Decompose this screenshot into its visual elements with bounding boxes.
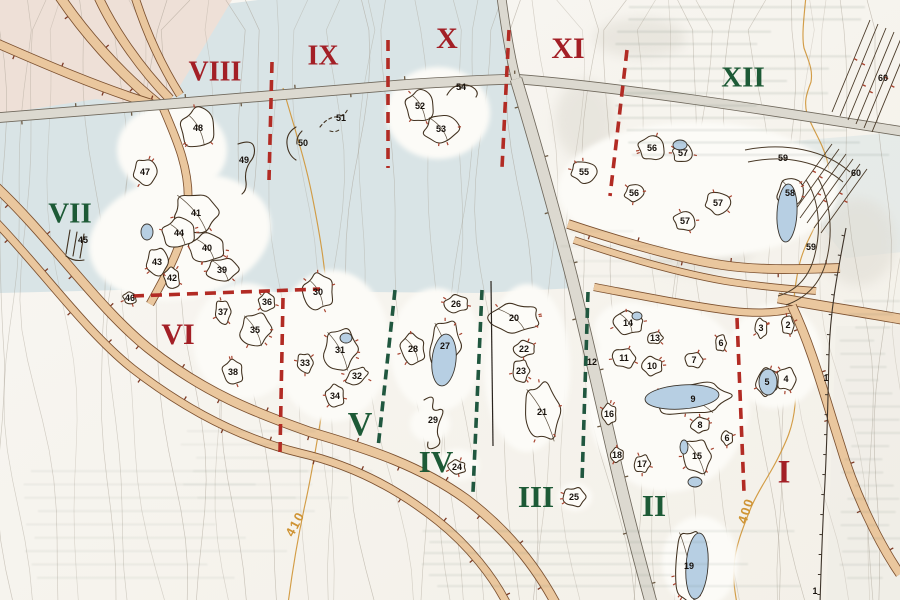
map-canvas: 1123456678910111213141516171819202122232… (0, 0, 900, 600)
print-bleed-line (840, 340, 875, 342)
feature-number-label: 32 (352, 371, 362, 381)
scarp-tick (170, 217, 173, 218)
print-bleed-line (632, 154, 889, 156)
bank-tick (842, 235, 845, 236)
zone-numeral-label: IV (419, 444, 454, 479)
feature-number-label: 49 (239, 155, 249, 165)
feature-number-label: 26 (451, 299, 461, 309)
scarp-tick (468, 306, 471, 307)
road-tick (623, 533, 626, 534)
scarp-tick (194, 104, 195, 107)
scarp-tick (538, 314, 541, 315)
print-bleed-line (855, 326, 890, 328)
scarp-tick (220, 297, 221, 300)
road-tick (681, 262, 682, 266)
print-bleed-line (422, 530, 794, 532)
feature-number-label: 2 (785, 320, 790, 330)
feature-number-label: 33 (300, 358, 310, 368)
feature-number-label: 43 (152, 257, 162, 267)
print-bleed-line (843, 300, 900, 302)
feature-number-label: 14 (623, 318, 633, 328)
zone-numeral-label: VI (161, 318, 194, 351)
feature-number-label: 45 (78, 235, 88, 245)
zone-numeral-label: I (778, 455, 791, 491)
road-tick (597, 426, 600, 427)
feature-number-label: 37 (218, 307, 228, 317)
feature-number-label: 58 (785, 188, 795, 198)
scarp-tick (539, 379, 540, 382)
scarp-tick (685, 414, 686, 417)
feature-number-label: 3 (758, 323, 763, 333)
feature-number-label: 20 (509, 313, 519, 323)
zone-numeral-label: VII (48, 198, 92, 230)
feature-number-label: 16 (604, 409, 614, 419)
scarp-tick (786, 313, 787, 316)
scarp-tick (441, 302, 444, 303)
feature-number-label: 24 (452, 462, 462, 472)
scarp-tick (790, 334, 791, 337)
print-bleed-line (850, 366, 887, 368)
print-bleed-line (847, 577, 883, 579)
feature-number-label: 56 (647, 143, 657, 153)
feature-number-label: 46 (125, 293, 135, 303)
feature-number-label: 54 (456, 82, 466, 92)
feature-number-label: 8 (697, 420, 702, 430)
feature-number-label: 22 (519, 344, 529, 354)
feature-number-label: 23 (516, 366, 526, 376)
print-bleed-line (422, 563, 749, 565)
pond (340, 333, 352, 343)
feature-number-label: 21 (537, 407, 547, 417)
print-bleed-line (578, 275, 679, 277)
print-bleed-line (193, 470, 373, 472)
print-bleed-line (840, 524, 889, 526)
print-bleed-line (197, 497, 348, 499)
feature-number-label: 59 (806, 242, 816, 252)
scarp-tick (294, 360, 297, 361)
feature-number-label: 30 (313, 287, 323, 297)
print-bleed-line (840, 564, 888, 566)
print-bleed-line (629, 6, 865, 8)
print-bleed-line (560, 245, 664, 247)
print-bleed-line (842, 550, 878, 552)
print-bleed-line (845, 379, 878, 381)
feature-number-label: 15 (692, 451, 702, 461)
scarp-tick (344, 398, 347, 399)
feature-number-label: 6 (718, 338, 723, 348)
print-bleed-line (34, 537, 246, 539)
print-bleed-line (851, 419, 900, 421)
road-tick (515, 107, 518, 108)
road-tick (625, 476, 628, 477)
feature-number-label: 34 (330, 391, 340, 401)
feature-number-label: 50 (298, 138, 308, 148)
print-bleed-line (844, 458, 882, 460)
zone-numeral-label: III (518, 479, 554, 514)
print-bleed-line (570, 230, 634, 232)
print-bleed-line (847, 405, 900, 407)
feature-number-label: 1 (812, 586, 817, 596)
print-bleed-line (429, 574, 673, 576)
scarp-tick (643, 191, 646, 192)
feature-number-label: 59 (778, 153, 788, 163)
bank-tick (838, 255, 841, 256)
scarp-tick (709, 423, 712, 424)
feature-number-label: 17 (637, 459, 647, 469)
feature-number-label: 41 (191, 208, 201, 218)
print-bleed-line (31, 563, 207, 565)
zone-numeral-label: XII (721, 62, 765, 94)
print-bleed-line (196, 457, 339, 459)
feature-number-label: 4 (783, 374, 788, 384)
feature-number-label: 6 (724, 433, 729, 443)
feature-number-label: 25 (569, 492, 579, 502)
feature-number-label: 29 (428, 415, 438, 425)
feature-number-label: 44 (174, 228, 184, 238)
zone-numeral-label: XI (551, 32, 584, 65)
feature-number-label: 53 (436, 124, 446, 134)
print-bleed-line (615, 104, 756, 106)
feature-number-label: 19 (684, 561, 694, 571)
road-tick (572, 319, 575, 320)
scanned-map-page: 1123456678910111213141516171819202122232… (0, 0, 900, 600)
print-bleed-line (617, 31, 771, 33)
pond (688, 477, 702, 487)
scarp-tick (341, 374, 344, 375)
print-bleed-line (615, 43, 757, 45)
road-tick (545, 156, 548, 157)
zone-numeral-label: VIII (189, 56, 242, 87)
feature-number-label: 55 (579, 167, 589, 177)
print-bleed-line (840, 353, 885, 355)
feature-number-label: 40 (202, 243, 212, 253)
print-bleed-line (618, 117, 781, 119)
print-bleed-line (437, 585, 801, 587)
feature-number-label: 13 (650, 333, 660, 343)
scarp-tick (509, 373, 512, 374)
scarp-tick (650, 466, 653, 467)
print-bleed-line (847, 537, 900, 539)
print-bleed-line (187, 430, 316, 432)
feature-number-label: 57 (680, 216, 690, 226)
print-bleed-line (424, 552, 686, 554)
print-bleed-line (855, 485, 894, 487)
print-bleed-line (37, 577, 235, 579)
print-bleed-line (181, 443, 284, 445)
feature-number-label: 35 (250, 325, 260, 335)
print-bleed-line (628, 141, 860, 143)
print-bleed-line (626, 129, 846, 131)
print-bleed-line (25, 550, 287, 552)
feature-number-label: 31 (335, 345, 345, 355)
feature-number-label: 51 (336, 113, 346, 123)
print-bleed-line (628, 18, 861, 20)
zone-numeral-label: II (642, 488, 666, 523)
print-bleed-line (429, 541, 709, 543)
road-tick (545, 213, 548, 214)
scarp-tick (611, 400, 612, 403)
feature-number-label: 7 (691, 355, 696, 365)
feature-number-label: 27 (440, 341, 450, 351)
feature-number-label: 1 (823, 373, 828, 383)
print-bleed-line (849, 313, 894, 315)
zone-numeral-label: X (436, 22, 458, 55)
print-bleed-line (841, 511, 896, 513)
scarp-tick (458, 474, 459, 477)
feature-number-label: 57 (713, 198, 723, 208)
feature-number-label: 60 (851, 168, 861, 178)
print-bleed-line (847, 498, 899, 500)
scarp-tick (159, 229, 162, 230)
print-bleed-line (856, 432, 900, 434)
scarp-tick (560, 499, 563, 500)
feature-number-label: 18 (612, 450, 622, 460)
print-bleed-line (183, 483, 313, 485)
road-tick (600, 369, 603, 370)
feature-number-label: 56 (629, 188, 639, 198)
feature-number-label: 5 (764, 377, 769, 387)
pond (141, 224, 153, 240)
feature-number-label: 39 (217, 265, 227, 275)
print-bleed-line (841, 471, 883, 473)
print-bleed-line (848, 392, 892, 394)
scarp-tick (699, 414, 700, 417)
zone-numeral-label: IX (307, 40, 338, 71)
feature-number-label: 36 (262, 297, 272, 307)
feature-number-label: 60 (878, 73, 888, 83)
print-bleed-line (38, 510, 315, 512)
zone-numeral-label: V (348, 406, 373, 443)
feature-number-label: 57 (678, 148, 688, 158)
print-bleed-line (851, 445, 889, 447)
scarp-tick (802, 196, 805, 197)
print-bleed-line (26, 523, 216, 525)
pond (632, 312, 642, 320)
feature-number-label: 42 (167, 273, 177, 283)
feature-number-label: 52 (415, 101, 425, 111)
feature-number-label: 10 (647, 361, 657, 371)
feature-number-label: 38 (228, 367, 238, 377)
road-tick (652, 582, 655, 583)
feature-number-label: 11 (619, 353, 629, 363)
feature-number-label: 9 (690, 394, 695, 404)
feature-number-label: 12 (587, 357, 597, 367)
feature-number-label: 28 (408, 344, 418, 354)
scarp-tick (568, 169, 571, 170)
scarp-tick (636, 150, 639, 151)
scarp-tick (559, 406, 562, 407)
print-bleed-line (627, 55, 851, 57)
feature-number-label: 47 (140, 167, 150, 177)
pond (680, 440, 688, 454)
feature-number-label: 48 (193, 123, 203, 133)
scarp-tick (202, 262, 203, 265)
print-bleed-line (567, 260, 673, 262)
